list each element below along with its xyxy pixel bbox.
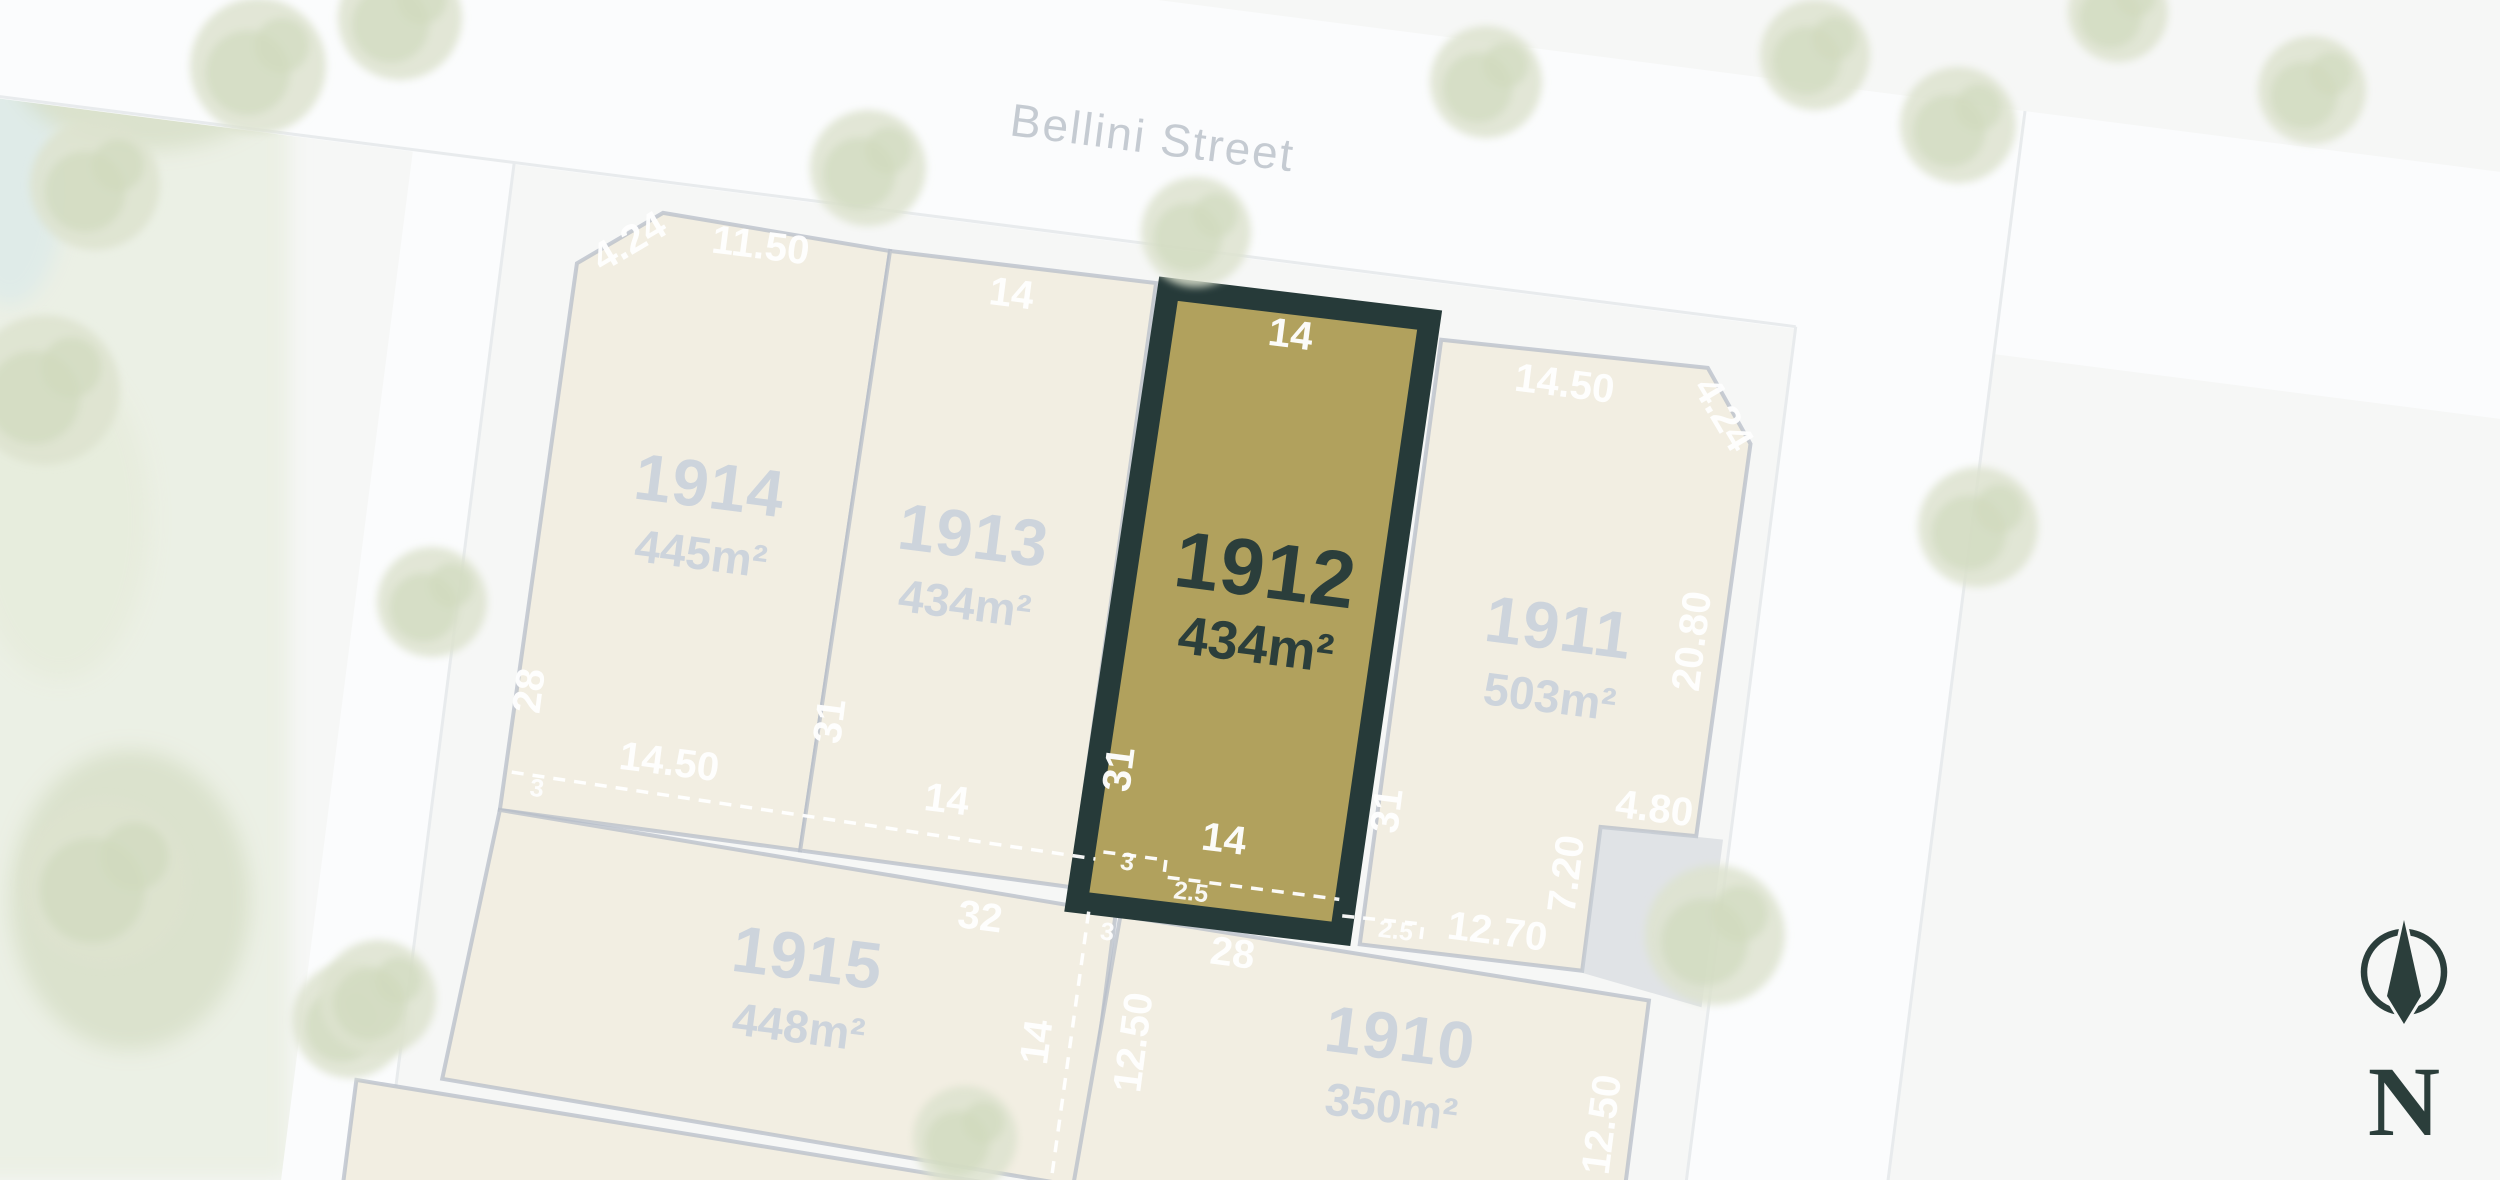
estate-lot-map: 1914445m²1913434m²1911503m²1915448m²1910…: [0, 0, 2500, 1180]
dimension-label: 14: [1266, 310, 1316, 359]
dimension-label: 28: [1208, 929, 1258, 978]
dimension-label: 14: [987, 269, 1037, 318]
tree-icon: [1918, 467, 2038, 587]
dimension-label: 31: [1094, 744, 1143, 794]
tree-icon: [2258, 36, 2366, 144]
dimension-label: 2.5: [1172, 876, 1210, 908]
dimension-label: 14: [1199, 815, 1249, 864]
tree-icon: [1760, 0, 1870, 110]
compass-north-label: N: [2368, 1046, 2440, 1157]
dimension-label: 14: [922, 775, 972, 824]
tree-icon: [377, 547, 487, 657]
dimension-label: 2.5: [1377, 915, 1415, 947]
dimension-label: 32: [955, 892, 1005, 941]
tree-icon: [1900, 67, 2016, 183]
dimension-label: 31: [1362, 786, 1411, 836]
dimension-label: 14: [1012, 1016, 1061, 1066]
dimension-label: 31: [805, 696, 854, 746]
tree-icon: [320, 940, 436, 1056]
tree-icon: [1141, 177, 1251, 287]
tree-icon: [20, 797, 190, 967]
estate-map-canvas: 1914445m²1913434m²1911503m²1915448m²1910…: [0, 0, 2500, 1180]
tree-icon: [190, 0, 326, 134]
tree-icon: [30, 120, 160, 250]
dimension-label: 28: [505, 666, 554, 716]
tree-icon: [1430, 26, 1542, 138]
tree-icon: [1645, 865, 1785, 1005]
tree-icon: [810, 110, 926, 226]
